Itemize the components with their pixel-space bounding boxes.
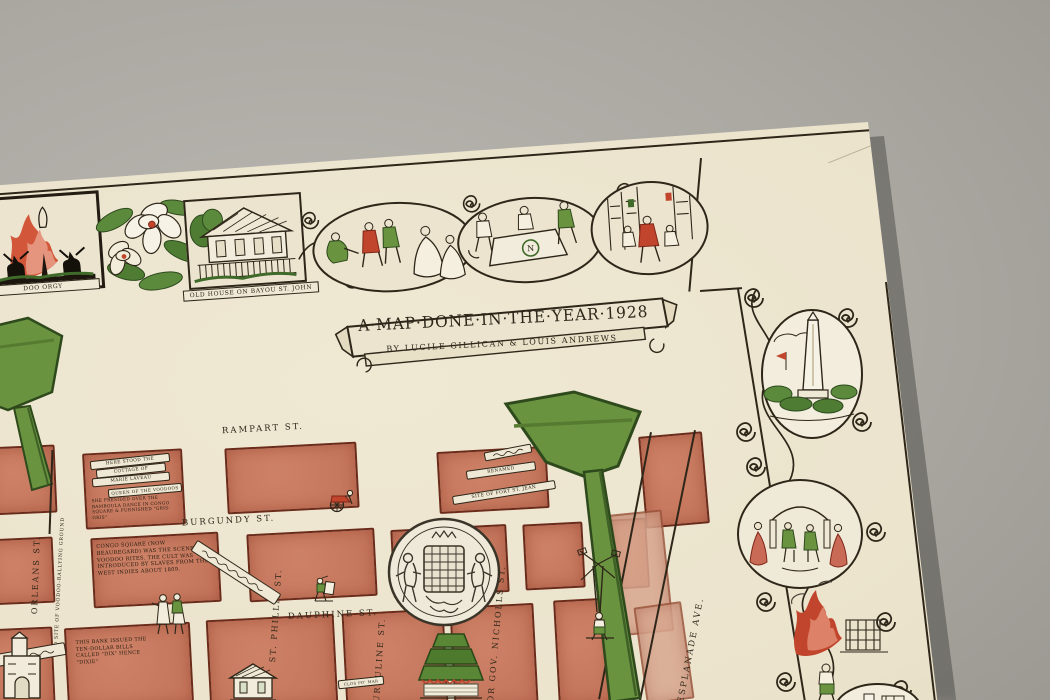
convent-green-roof-illustration xyxy=(414,632,486,700)
street-label-burgundy: BURGUNDY ST. xyxy=(182,514,276,529)
road-pin-esplanade xyxy=(500,386,648,700)
border-rule-top xyxy=(0,129,880,196)
city-block xyxy=(0,537,55,606)
horse-cart-illustration xyxy=(326,486,358,514)
svg-text:N: N xyxy=(527,244,535,253)
sketching-figure-illustration xyxy=(310,576,338,604)
figures-pair-illustration xyxy=(152,592,188,636)
road-pin-left xyxy=(0,314,68,496)
map-paper-sheet: DOO ORGY xyxy=(0,0,1050,700)
top-scrollwork-vignettes: N xyxy=(295,173,705,306)
church-building-illustration xyxy=(0,636,46,700)
right-scrollwork-band xyxy=(726,282,944,700)
dixie-note: THIS BANK ISSUED THE TEN-DOLLAR BILLS CA… xyxy=(75,636,150,666)
old-house-vignette xyxy=(183,192,307,290)
congo-square-note: CONGO SQUARE (NOW BEAUREGARD) WAS THE SC… xyxy=(96,538,210,578)
street-label-rampart: RAMPART ST. xyxy=(222,422,304,437)
city-seal-illustration xyxy=(386,516,502,630)
cottage-building-illustration xyxy=(228,662,278,700)
windmill-illustration xyxy=(568,548,626,640)
laveau-note-text: SHE PRESIDED OVER THE BAMBOULA DANCE IN … xyxy=(91,495,176,522)
photograph-of-1928-map: DOO ORGY xyxy=(0,0,1050,700)
